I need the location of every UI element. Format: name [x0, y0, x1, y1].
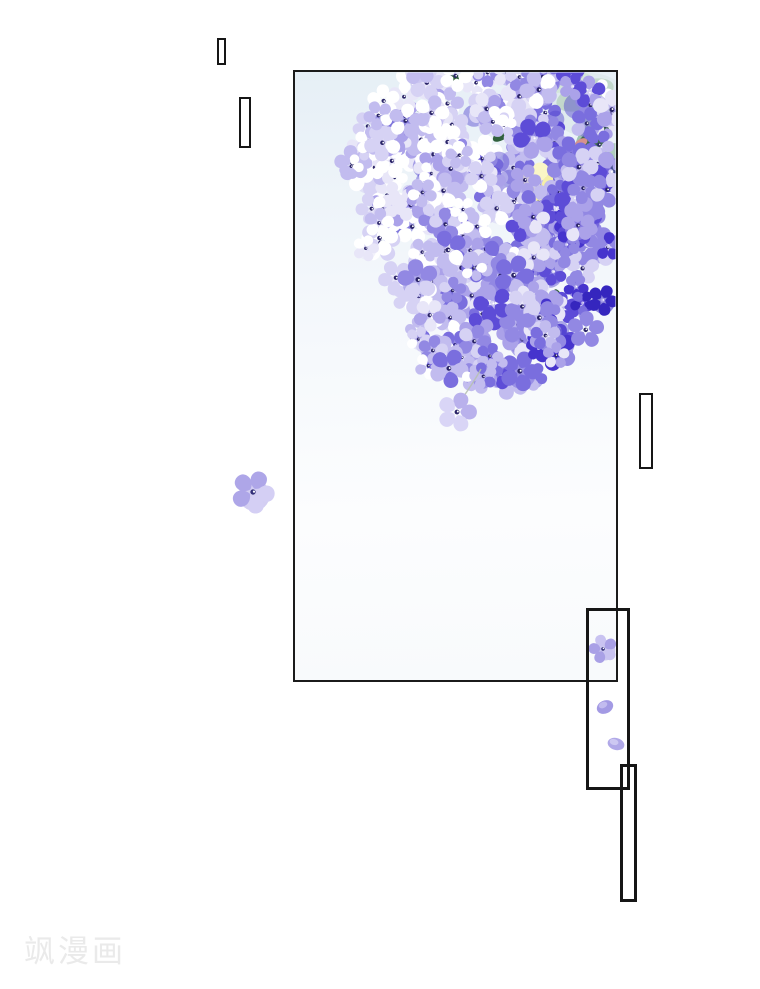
flower [223, 462, 284, 522]
flower [479, 10, 521, 53]
comic-page: { "page": { "background_color": "#ffffff… [0, 0, 760, 989]
flower [428, 16, 482, 69]
vertical-text-box-right [639, 393, 653, 469]
comic-panel-border [293, 70, 618, 682]
vertical-text-box-small [217, 38, 226, 65]
flower [466, 25, 512, 70]
vertical-text-box-upper-left [239, 97, 251, 148]
vertical-text-box-bottom-wide [586, 608, 630, 790]
watermark: 飒漫画 [24, 934, 126, 971]
vertical-text-box-bottom-narrow [620, 764, 637, 902]
flower [432, 28, 473, 67]
